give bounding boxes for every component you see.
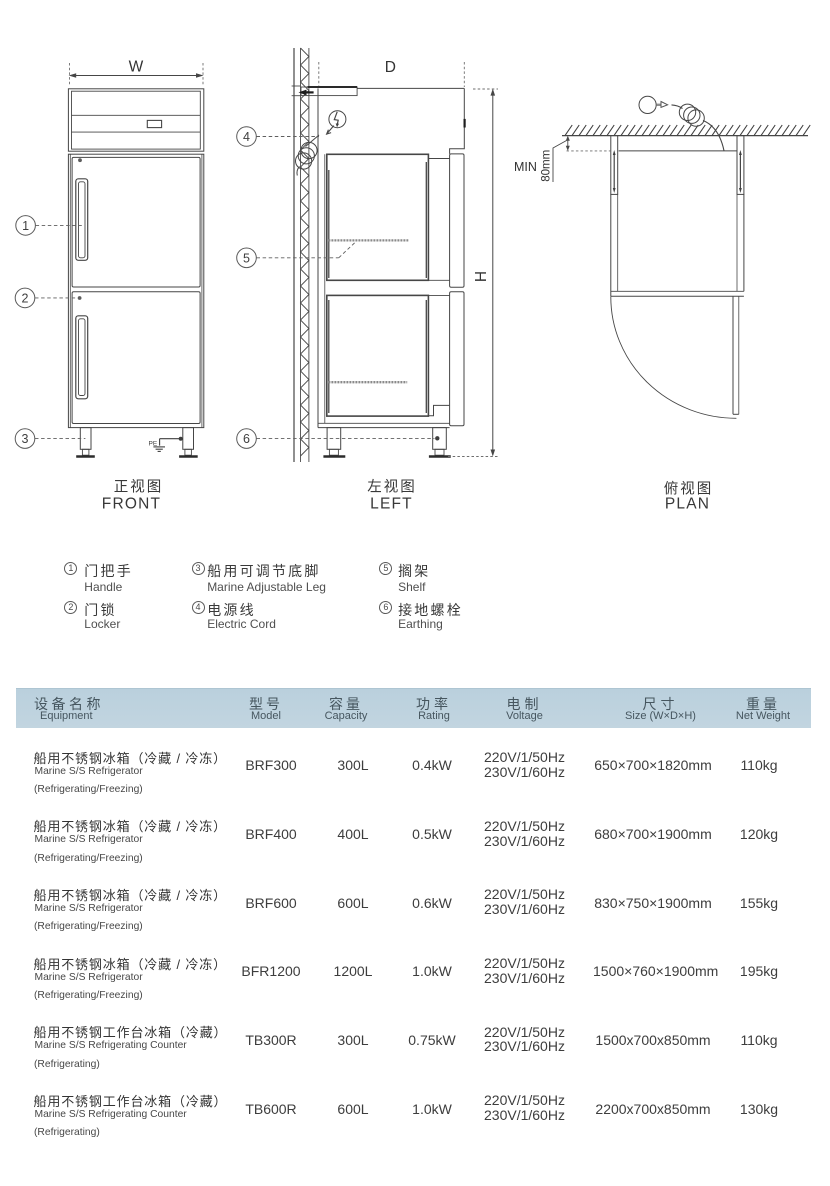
svg-text:PE: PE: [149, 440, 158, 447]
svg-text:LEFT: LEFT: [370, 496, 413, 513]
svg-text:3: 3: [22, 432, 29, 446]
svg-text:4: 4: [243, 130, 250, 144]
svg-text:1: 1: [22, 219, 29, 233]
svg-text:6: 6: [243, 432, 250, 446]
svg-text:左视图: 左视图: [367, 479, 417, 496]
svg-text:W: W: [129, 59, 144, 76]
svg-text:PLAN: PLAN: [665, 496, 710, 513]
svg-text:D: D: [385, 59, 396, 76]
svg-text:MIN: MIN: [514, 160, 537, 174]
svg-text:80mm: 80mm: [541, 150, 553, 182]
svg-text:2: 2: [22, 291, 29, 305]
svg-text:H: H: [473, 271, 490, 282]
svg-text:FRONT: FRONT: [102, 496, 161, 513]
svg-text:正视图: 正视图: [114, 479, 164, 496]
svg-text:5: 5: [243, 251, 250, 265]
